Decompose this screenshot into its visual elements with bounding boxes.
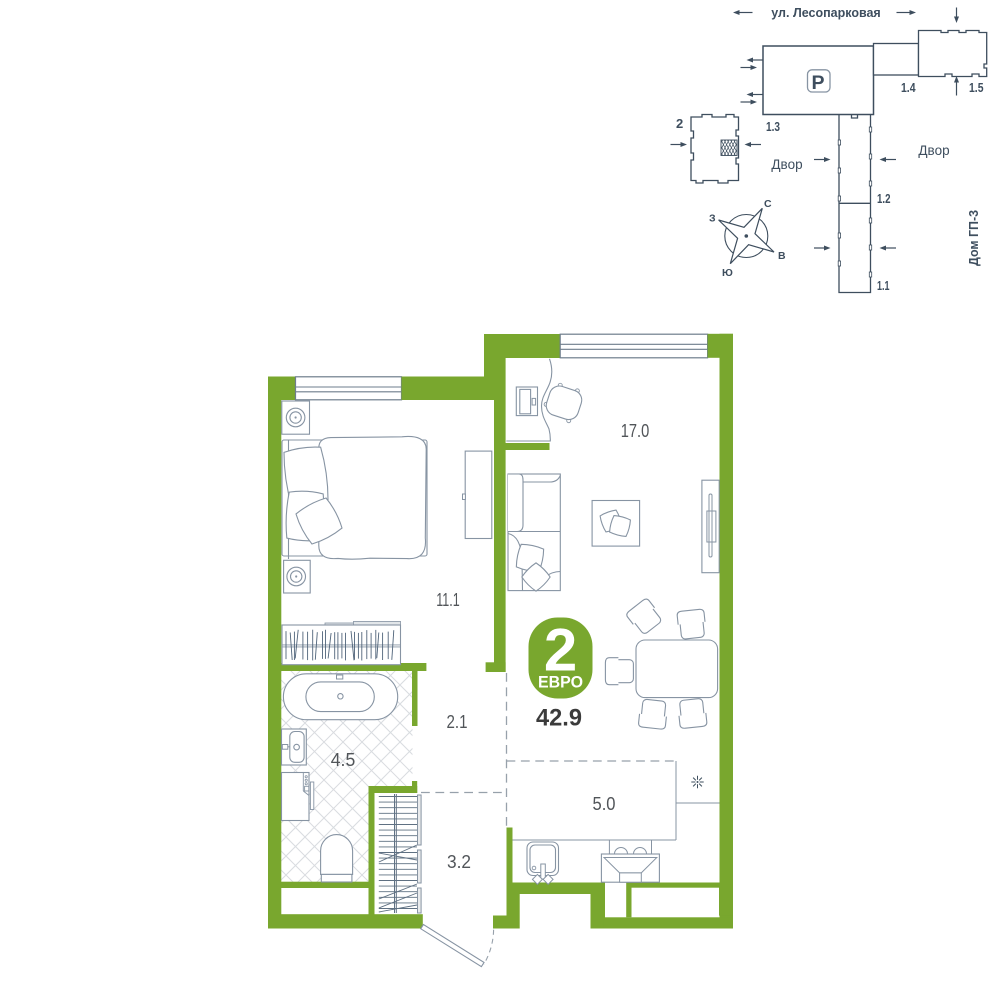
svg-text:З: З: [709, 213, 716, 225]
svg-text:1.1: 1.1: [877, 278, 890, 293]
svg-text:Двор: Двор: [918, 143, 949, 158]
svg-text:42.9: 42.9: [536, 705, 582, 732]
svg-text:2: 2: [676, 116, 683, 131]
svg-text:4.5: 4.5: [331, 749, 356, 770]
svg-text:11.1: 11.1: [436, 589, 460, 610]
svg-text:1.3: 1.3: [766, 119, 780, 134]
svg-text:Дом ГП-3: Дом ГП-3: [966, 210, 981, 266]
svg-text:3.2: 3.2: [447, 851, 471, 872]
svg-text:1.5: 1.5: [969, 80, 984, 95]
svg-text:1.2: 1.2: [877, 191, 891, 206]
svg-text:2.1: 2.1: [447, 711, 468, 732]
svg-text:Двор: Двор: [771, 157, 802, 172]
svg-text:1.4: 1.4: [901, 80, 916, 95]
svg-text:В: В: [778, 250, 786, 262]
svg-text:С: С: [764, 198, 772, 210]
svg-text:P: P: [811, 72, 824, 94]
svg-text:ул. Лесопарковая: ул. Лесопарковая: [771, 6, 880, 20]
svg-text:5.0: 5.0: [593, 793, 616, 814]
svg-text:17.0: 17.0: [621, 420, 650, 441]
svg-text:Ю: Ю: [722, 267, 733, 279]
svg-text:ЕВРО: ЕВРО: [538, 674, 583, 692]
